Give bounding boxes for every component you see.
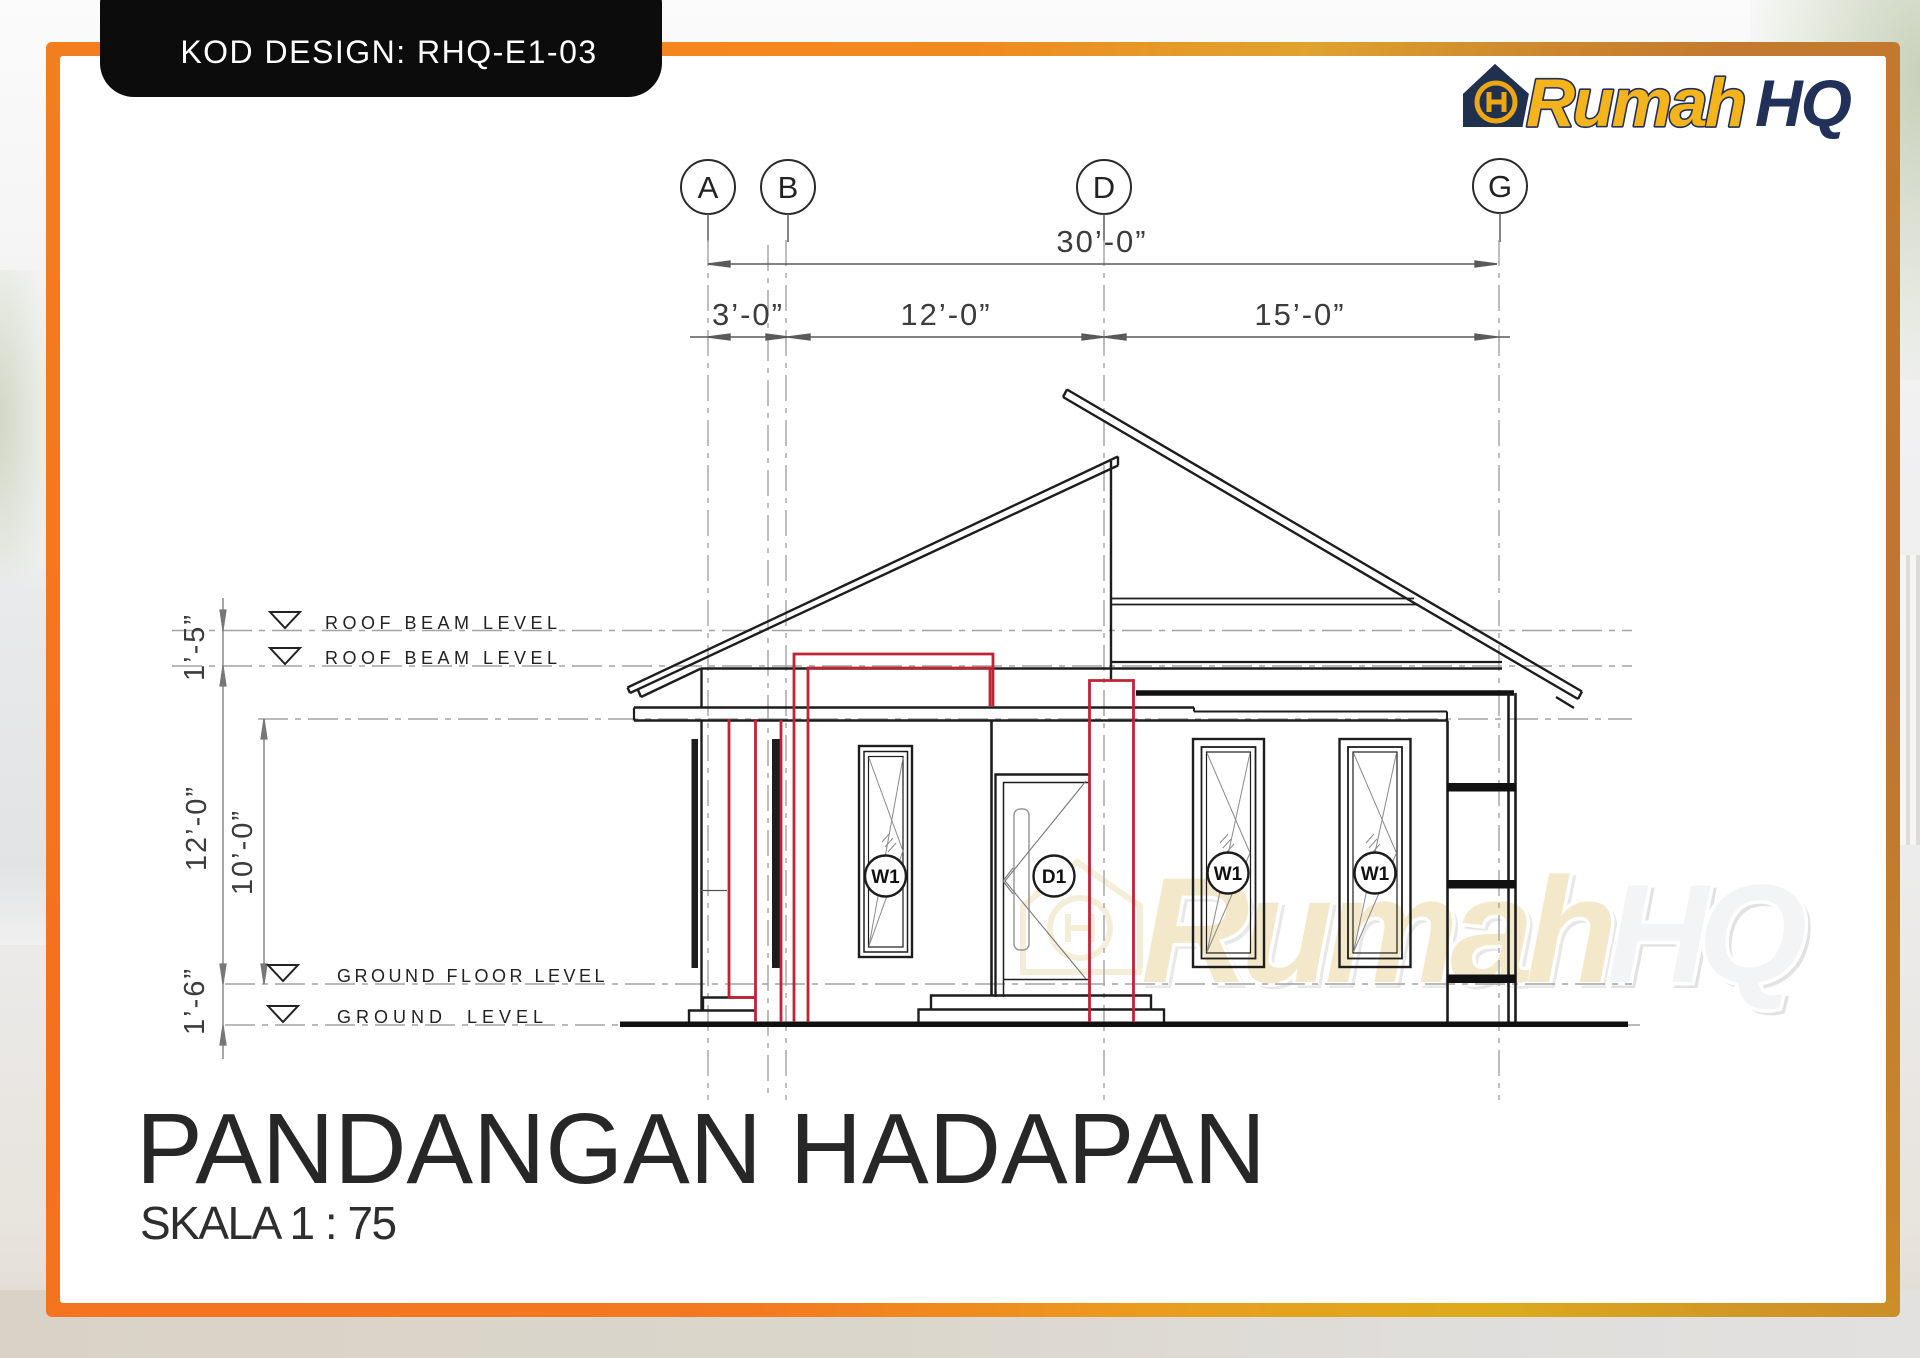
- svg-text:W1: W1: [1361, 864, 1390, 885]
- svg-text:1’-5”: 1’-5”: [179, 613, 211, 681]
- svg-text:ROOF BEAM LEVEL: ROOF BEAM LEVEL: [325, 648, 562, 668]
- svg-text:HQ: HQ: [1607, 855, 1805, 1012]
- svg-text:15’-0”: 15’-0”: [1254, 297, 1345, 332]
- svg-text:30’-0”: 30’-0”: [1056, 224, 1147, 259]
- svg-text:ROOF BEAM LEVEL: ROOF BEAM LEVEL: [325, 613, 562, 633]
- svg-text:Rumah: Rumah: [1526, 65, 1744, 141]
- svg-text:D: D: [1093, 170, 1115, 205]
- svg-text:1’-6”: 1’-6”: [179, 967, 211, 1035]
- svg-text:10’-0”: 10’-0”: [227, 809, 259, 895]
- svg-text:GROUND FLOOR LEVEL: GROUND FLOOR LEVEL: [337, 966, 608, 986]
- svg-text:HQ: HQ: [1755, 66, 1852, 140]
- svg-text:W1: W1: [871, 867, 900, 888]
- svg-text:12’-0”: 12’-0”: [181, 785, 213, 871]
- svg-text:B: B: [778, 170, 799, 205]
- svg-text:3’-0”: 3’-0”: [712, 297, 784, 332]
- svg-text:W1: W1: [1214, 864, 1243, 885]
- svg-text:G: G: [1488, 169, 1512, 204]
- svg-text:GROUND LEVEL: GROUND LEVEL: [337, 1007, 548, 1027]
- svg-text:12’-0”: 12’-0”: [900, 297, 991, 332]
- svg-text:D1: D1: [1042, 867, 1067, 888]
- svg-text:A: A: [698, 170, 719, 205]
